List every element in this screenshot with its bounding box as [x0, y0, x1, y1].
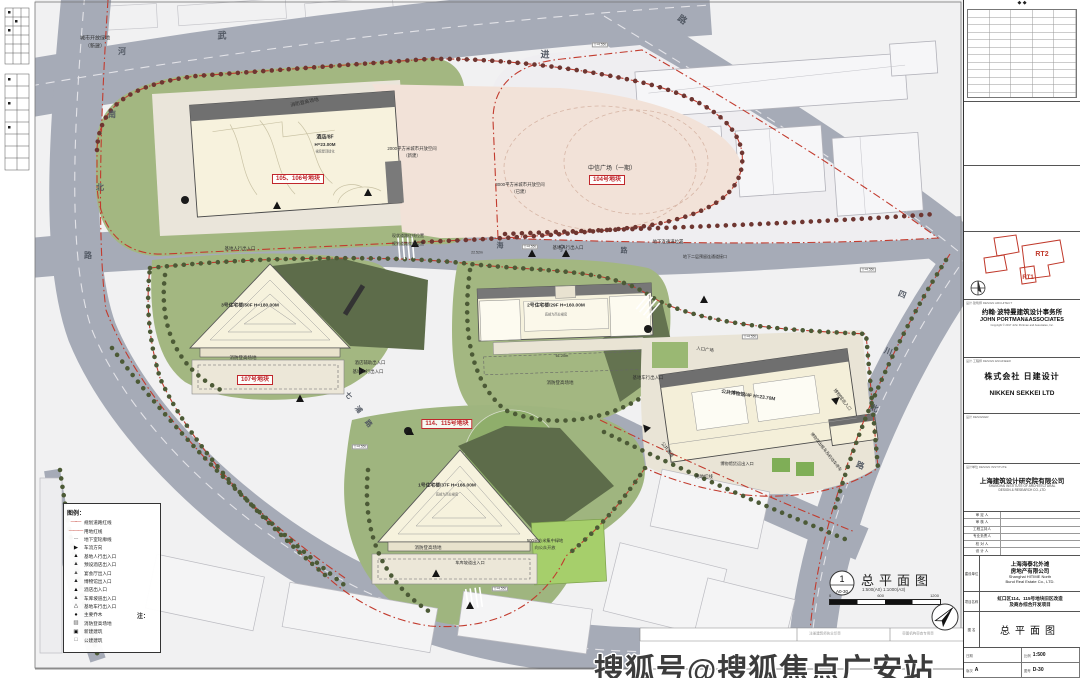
- svg-text:RT1: RT1: [1022, 275, 1034, 281]
- legend-item-label: 消防登高场地: [84, 621, 112, 627]
- legend-symbol-icon: ▶: [67, 546, 84, 552]
- role-label: 专业负责人: [964, 534, 1001, 540]
- institute-name-en-2: DESIGN & RESEARCH CO.,LTD: [964, 489, 1080, 493]
- role-row: 校 对 人: [964, 541, 1080, 548]
- legend-item-label: 预设酒店出入口: [84, 562, 116, 568]
- legend-item: □ 公建建筑: [67, 636, 157, 644]
- project-name-line-2: 及商办综合开发项目: [1009, 602, 1050, 608]
- engineer-section: 设计·工程师 DESIGN ENGINEER 株式会社 日建设计 NIKKEN …: [964, 358, 1080, 414]
- notes: 注：: [137, 611, 457, 621]
- role-label: 校 对 人: [964, 541, 1001, 547]
- legend-symbol-icon: ———: [67, 529, 84, 535]
- role-row: 设 计 人: [964, 548, 1080, 555]
- titleblock-blank-1: [964, 102, 1080, 166]
- legend-item: ▲ 基地人行出入口: [67, 553, 157, 561]
- architect-name-zh: 约翰·波特曼建筑设计事务所: [964, 306, 1080, 316]
- engineer-name-en: NIKKEN SEKKEI LTD: [964, 390, 1080, 397]
- legend-symbol-icon: ▲: [67, 571, 84, 577]
- legend-item: - - - 地下室轮廓线: [67, 536, 157, 544]
- legend-item: ▣ 新建建筑: [67, 628, 157, 636]
- role-label: 工程主持人: [964, 527, 1001, 533]
- legend-item: ▲ 车库坡道出入口: [67, 595, 157, 603]
- legend-item-label: 公建建筑: [84, 638, 102, 644]
- title-block: ◆ ◆ RT2 RT1 设计·建筑师 DESIGN ARCHITECT 约翰·波…: [963, 0, 1080, 678]
- titleblock-blank-2: [964, 166, 1080, 232]
- titleblock-bottom: 日期 比例1:500 版次A 图号D-30: [964, 648, 1080, 678]
- legend-symbol-icon: ▲: [67, 562, 84, 568]
- legend-item-label: 车库坡道出入口: [84, 596, 116, 602]
- architect-section: 设计·建筑师 DESIGN ARCHITECT 约翰·波特曼建筑设计事务所 JO…: [964, 300, 1080, 358]
- legend: 图例： —·— 规划道路红线 ——— 用地红线 - - - 地下室轮廓线 ▶ 车…: [63, 503, 161, 653]
- legend-symbol-icon: ▨: [67, 621, 84, 627]
- institute-section-label: 设计单位 DESIGN INSTITUTE: [964, 464, 1080, 469]
- role-row: 工程主持人: [964, 527, 1080, 534]
- drawing-title-section: 图 名 总平面图: [964, 612, 1080, 648]
- role-label: 审 核 人: [964, 519, 1001, 525]
- institute-section: 设计单位 DESIGN INSTITUTE 上海建筑设计研究院有限公司 SHAN…: [964, 464, 1080, 512]
- legend-item-label: 基地人行出入口: [84, 554, 116, 560]
- revision-marks: ◆ ◆: [964, 0, 1080, 8]
- legend-symbol-icon: - - -: [67, 537, 84, 543]
- legend-item-label: 规划道路红线: [84, 520, 112, 526]
- engineer-name-zh: 株式会社 日建设计: [964, 371, 1080, 382]
- engineer-section-label: 设计·工程师 DESIGN ENGINEER: [964, 358, 1080, 363]
- keyplan-north-icon: [971, 281, 985, 295]
- watermark: 搜狐号@搜狐焦点广安站: [594, 645, 934, 678]
- legend-item: ▲ 酒店出入口: [67, 586, 157, 594]
- legend-symbol-icon: ▲: [67, 596, 84, 602]
- svg-text:1: 1: [839, 574, 844, 584]
- sheet-title: 1 A0-30 总平面图 1:500(A0) 1:1000(A3) 060012…: [815, 564, 975, 618]
- roles-table: 审 定 人 审 核 人 工程主持人 专业负责人 校 对 人 设 计 人 制 图 …: [964, 512, 1080, 556]
- legend-item-label: 主要乔木: [84, 612, 102, 618]
- revision-table: ◆ ◆: [964, 0, 1080, 102]
- legend-item: —·— 规划道路红线: [67, 519, 157, 527]
- parcel-museum: [641, 325, 878, 494]
- sheet-margin-grid: [5, 8, 29, 170]
- legend-item-label: 博物馆出入口: [84, 579, 112, 585]
- hotel-building: [190, 91, 404, 217]
- legend-item-label: 基地车行出入口: [84, 604, 116, 610]
- legend-symbol-icon: ▲: [67, 588, 84, 594]
- legend-item: ——— 用地红线: [67, 527, 157, 535]
- revision-grid: [967, 9, 1077, 98]
- key-plan: RT2 RT1: [964, 232, 1080, 300]
- designer-section: 设计 DESIGNER: [964, 414, 1080, 464]
- legend-item-label: 车流方向: [84, 545, 102, 551]
- architect-copyright: Copyright © 2017 John Portman and Associ…: [964, 324, 1080, 327]
- architect-name-en: JOHN PORTMAN&ASSOCIATES: [964, 317, 1080, 323]
- role-label: 设 计 人: [964, 548, 1001, 554]
- legend-items: —·— 规划道路红线 ——— 用地红线 - - - 地下室轮廓线 ▶ 车流方向 …: [67, 519, 157, 645]
- svg-text:RT2: RT2: [1035, 251, 1048, 258]
- legend-item: ▶ 车流方向: [67, 544, 157, 552]
- legend-item-label: 新建建筑: [84, 629, 102, 635]
- role-label: 审 定 人: [964, 512, 1001, 518]
- legend-symbol-icon: ▲: [67, 579, 84, 585]
- sheet-title-scale: 1:500(A0) 1:1000(A3): [862, 587, 905, 592]
- designer-section-label: 设计 DESIGNER: [964, 414, 1080, 419]
- legend-title: 图例：: [67, 508, 157, 517]
- legend-item: ▲ 宴会厅出入口: [67, 569, 157, 577]
- legend-symbol-icon: ▲: [67, 554, 84, 560]
- legend-symbol-icon: —·—: [67, 520, 84, 526]
- legend-symbol-icon: ▣: [67, 630, 84, 636]
- legend-item-label: 酒店出入口: [84, 587, 107, 593]
- legend-item: ▲ 预设酒店出入口: [67, 561, 157, 569]
- scale-bar: [829, 599, 941, 605]
- legend-symbol-icon: □: [67, 638, 84, 644]
- legend-item-label: 地下室轮廓线: [84, 537, 112, 543]
- legend-symbol-icon: △: [67, 604, 84, 610]
- site-plan-sheet: 图例： —·— 规划道路红线 ——— 用地红线 - - - 地下室轮廓线 ▶ 车…: [0, 0, 1080, 678]
- role-row: 审 定 人: [964, 512, 1080, 519]
- role-row: 审 核 人: [964, 519, 1080, 526]
- legend-symbol-icon: ●: [67, 613, 84, 619]
- legend-item-label: 宴会厅出入口: [84, 571, 112, 577]
- role-row: 专业负责人: [964, 534, 1080, 541]
- drawing-title: 总平面图: [1000, 622, 1060, 637]
- architect-section-label: 设计·建筑师 DESIGN ARCHITECT: [964, 300, 1080, 305]
- project-section: 项目名称 虹口区114、115号地块旧区改造 及商办综合开发项目: [964, 592, 1080, 612]
- client-name-en-2: Bund Real Estate Co., LTD.: [1005, 580, 1054, 585]
- legend-item-label: 用地红线: [84, 529, 102, 535]
- scale-bar-labels: 06001200: [829, 593, 939, 598]
- legend-item: ▲ 博物馆出入口: [67, 578, 157, 586]
- client-section: 建设单位 上海海泰北外滩 房地产有限公司 Shanghai HITIME Nor…: [964, 556, 1080, 592]
- notes-title: 注：: [137, 611, 457, 620]
